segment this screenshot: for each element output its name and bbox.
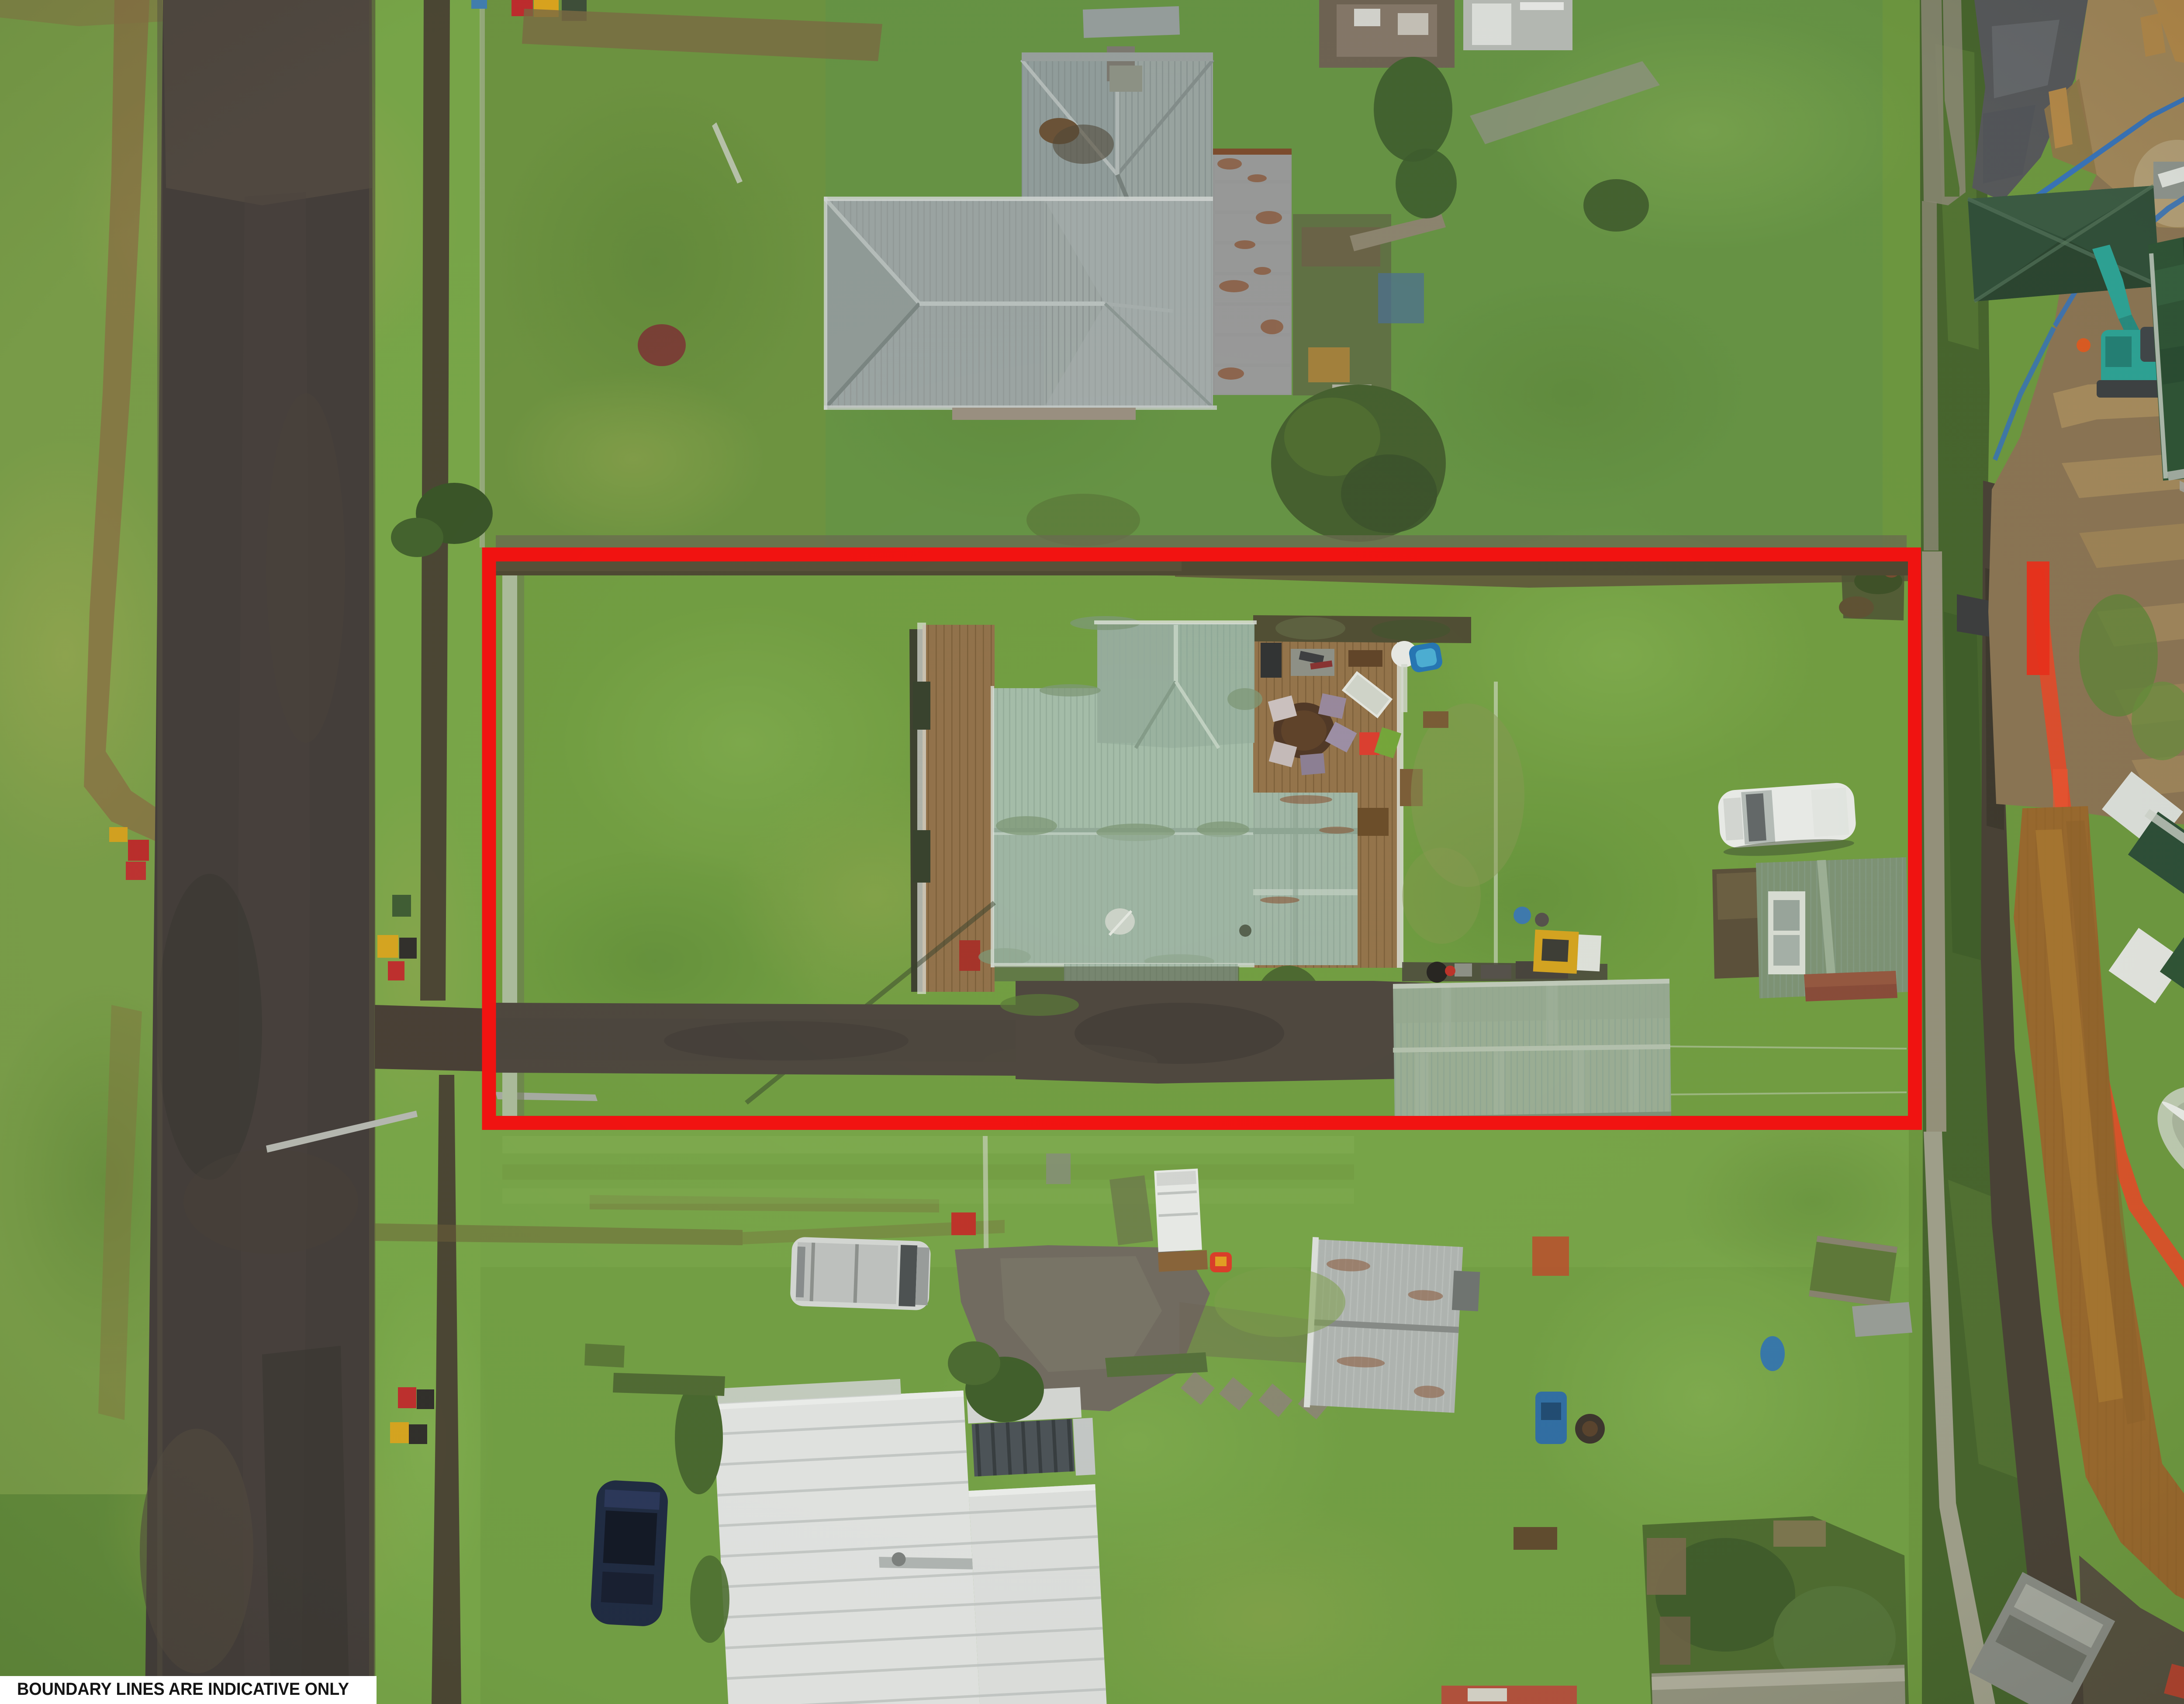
svg-text:BOUNDARY LINES ARE INDICATIVE: BOUNDARY LINES ARE INDICATIVE ONLY — [17, 1680, 349, 1699]
